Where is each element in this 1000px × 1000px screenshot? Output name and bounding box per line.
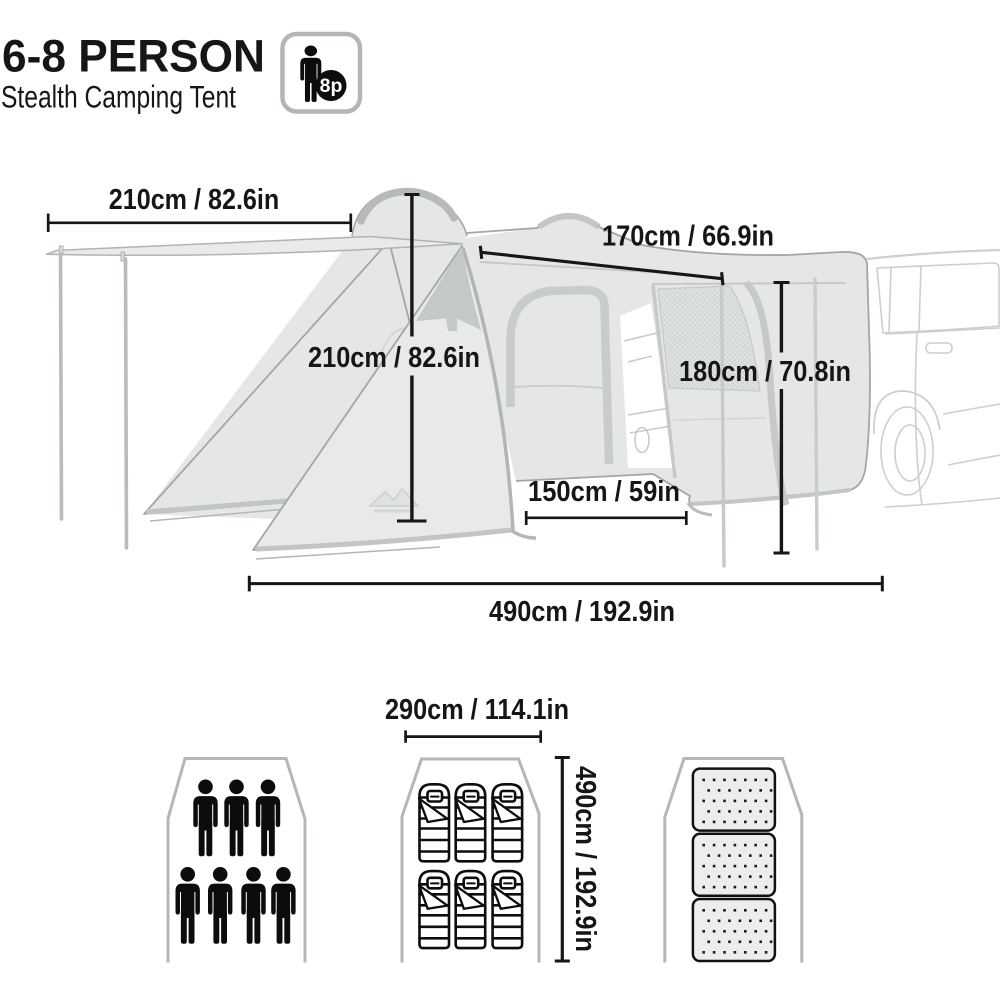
- svg-text:290cm / 114.1in: 290cm / 114.1in: [385, 694, 569, 726]
- svg-text:6-8 PERSON: 6-8 PERSON: [2, 31, 265, 82]
- svg-text:490cm / 192.9in: 490cm / 192.9in: [569, 766, 601, 952]
- svg-text:490cm / 192.9in: 490cm / 192.9in: [489, 596, 675, 628]
- svg-text:180cm / 70.8in: 180cm / 70.8in: [679, 356, 851, 388]
- svg-text:170cm / 66.9in: 170cm / 66.9in: [602, 221, 774, 253]
- svg-text:Stealth Camping Tent: Stealth Camping Tent: [1, 79, 236, 115]
- svg-text:210cm / 82.6in: 210cm / 82.6in: [109, 184, 280, 216]
- svg-text:150cm / 59in: 150cm / 59in: [528, 476, 680, 508]
- svg-text:210cm / 82.6in: 210cm / 82.6in: [308, 342, 480, 374]
- svg-text:8p: 8p: [320, 75, 343, 97]
